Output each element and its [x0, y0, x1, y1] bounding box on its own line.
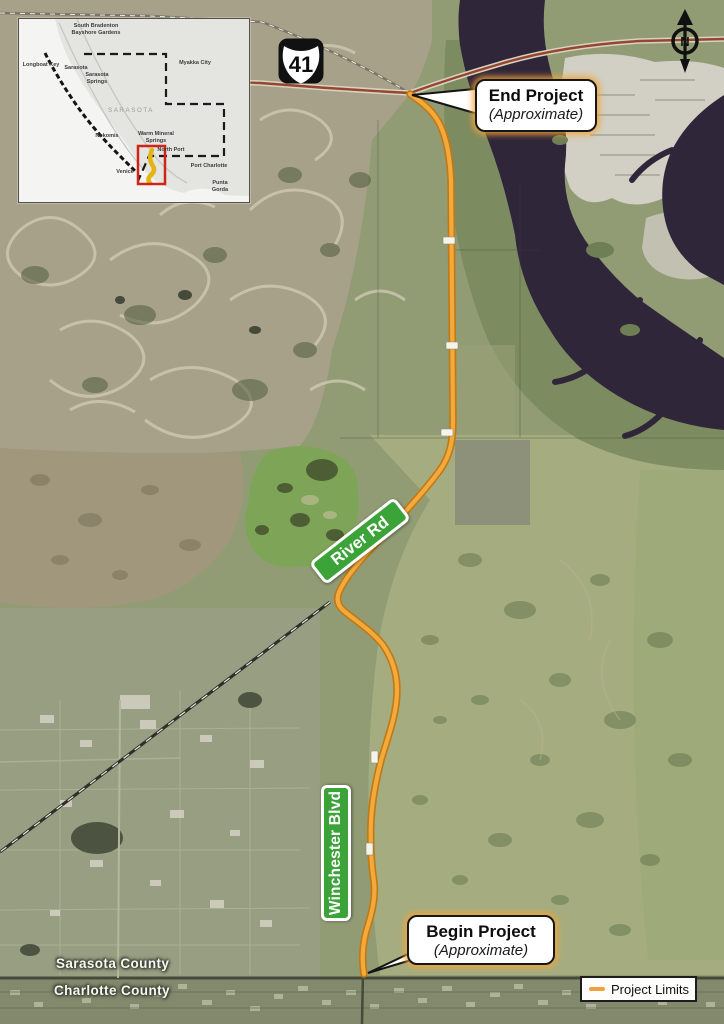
inset-label: Myakka City	[179, 60, 211, 67]
north-label: N	[680, 34, 689, 49]
inset-label: South Bradenton Bayshore Gardens	[72, 23, 121, 36]
inset-label: Longboat Key	[23, 62, 60, 69]
inset-label: Sarasota	[64, 65, 87, 72]
grey-parcel	[455, 440, 530, 525]
inset-label: Venice	[116, 169, 133, 176]
north-arrow: N	[655, 5, 715, 80]
project-limits-swatch	[589, 987, 605, 992]
inset-label: Nokomis	[95, 133, 118, 140]
north-arrow-base	[680, 59, 690, 73]
winchester-south-road	[362, 972, 363, 1024]
inset-label: Sarasota Springs	[85, 72, 108, 85]
winchester-blvd-sign-label: Winchester Blvd	[327, 791, 345, 915]
inset-label: Punta Gorda	[206, 180, 235, 193]
inset-label-county: SARASOTA	[108, 107, 154, 114]
end-project-subtitle: (Approximate)	[477, 106, 595, 124]
begin-project-title: Begin Project	[409, 921, 553, 942]
inset-label: North Port	[157, 147, 184, 154]
green-parcel	[455, 345, 515, 435]
county-label-charlotte: Charlotte County	[54, 983, 170, 998]
end-project-title: End Project	[477, 85, 595, 106]
inset-label: Warm Mineral Springs	[138, 131, 174, 144]
legend-label: Project Limits	[611, 982, 689, 997]
shield-number: 41	[289, 52, 313, 77]
us-41-shield: 41	[278, 38, 324, 84]
begin-project-subtitle: (Approximate)	[409, 942, 553, 960]
inset-label: Port Charlotte	[191, 163, 228, 170]
begin-project-callout: Begin Project (Approximate)	[407, 915, 555, 965]
project-location-map: South Bradenton Bayshore Gardens Longboa…	[0, 0, 724, 1024]
north-arrow-head	[677, 9, 693, 25]
end-project-callout: End Project (Approximate)	[475, 79, 597, 132]
county-label-sarasota: Sarasota County	[56, 956, 169, 971]
east-fields	[634, 470, 724, 960]
legend-box: Project Limits	[580, 976, 697, 1002]
inset-locator-map: South Bradenton Bayshore Gardens Longboa…	[18, 18, 250, 203]
winchester-blvd-sign: Winchester Blvd	[321, 785, 351, 921]
